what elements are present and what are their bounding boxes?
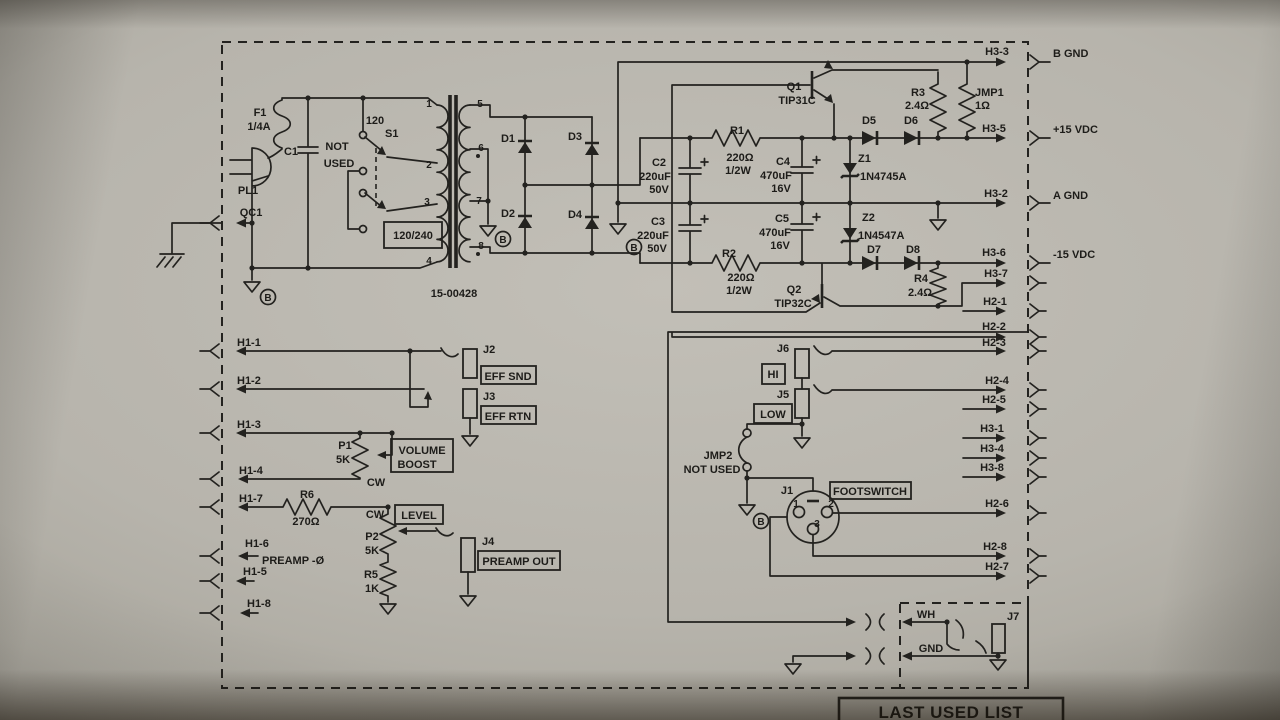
diode-d4: D4 (568, 209, 583, 221)
label-h3-1: H3-1 (980, 423, 1004, 435)
xfmr-pin3: 3 (424, 197, 430, 208)
fuse-f1-value: 1/4A (247, 121, 270, 133)
cap-c2-v: 50V (649, 184, 669, 196)
res-r6-ref: R6 (300, 489, 314, 501)
xfmr-pin4: 4 (426, 256, 432, 267)
label-h3-3: H3-3 (985, 46, 1009, 58)
jack-j4-ref: J4 (482, 536, 495, 548)
xlr-pin2: 2 (828, 499, 834, 510)
output-jack-wires (866, 614, 998, 664)
switch-120: 120 (366, 115, 384, 127)
jack-j3 (463, 389, 477, 418)
preamp-out-label: PREAMP OUT (482, 556, 555, 568)
cap-c2-uf: 220uF (639, 171, 671, 183)
conn-j1-ref: J1 (781, 485, 793, 497)
pot-p1-val: 5K (336, 454, 350, 466)
label-h2-8: H2-8 (983, 541, 1007, 553)
cap-c5-uf: 470uF (759, 227, 791, 239)
switch-s1-ref: S1 (385, 128, 398, 140)
footswitch-label: FOOTSWITCH (833, 486, 907, 498)
transformer-t1 (437, 95, 640, 268)
xfmr-pin6: 6 (478, 143, 484, 154)
cap-c2-ref: C2 (652, 157, 666, 169)
res-r5-val: 1K (365, 583, 379, 595)
qc1-ref: QC1 (240, 207, 263, 219)
label-h2-1: H2-1 (983, 296, 1007, 308)
h1-preamp-wires (245, 348, 470, 613)
jmp1-ohm: 1Ω (975, 100, 990, 112)
res-r4-ref: R4 (914, 273, 929, 285)
label-h1-4: H1-4 (239, 465, 264, 477)
diode-d7: D7 (867, 244, 881, 256)
cap-c4-v: 16V (771, 183, 791, 195)
transformer-part: 15-00428 (431, 288, 478, 300)
xfmr-pin5: 5 (477, 99, 483, 110)
cap-c3-v: 50V (647, 243, 667, 255)
cap-c3-ref: C3 (651, 216, 665, 228)
res-r1-ref: R1 (730, 125, 744, 137)
xlr-pin1: 1 (793, 499, 799, 510)
label-h1-3: H1-3 (237, 419, 261, 431)
res-r1-ohm: 220Ω (726, 152, 753, 164)
xfmr-pin2: 2 (426, 160, 432, 171)
res-r2-ohm: 220Ω (727, 272, 754, 284)
xfmr-pin8: 8 (478, 241, 484, 252)
diode-d5: D5 (862, 115, 876, 127)
cap-c1-ref: C1 (284, 146, 298, 158)
res-r4-ohm: 2.4Ω (908, 287, 932, 299)
zener-z2-part: 1N4547A (858, 230, 905, 242)
cap-c5-v: 16V (770, 240, 790, 252)
label-h1-7: H1-7 (239, 493, 263, 505)
cap-c5-ref: C5 (775, 213, 789, 225)
pot-p1-ref: P1 (338, 440, 351, 452)
diode-d6: D6 (904, 115, 918, 127)
label-h1-8: H1-8 (247, 598, 271, 610)
jack-j2-ref: J2 (483, 344, 495, 356)
ac-input-wires (157, 98, 437, 280)
voltage-selector: 120/240 (393, 230, 433, 242)
xlr-pin3: 3 (814, 519, 820, 530)
label-minus15: -15 VDC (1053, 249, 1095, 261)
res-r3-ref: R3 (911, 87, 925, 99)
res-r2-ref: R2 (722, 248, 736, 260)
label-h1-2: H1-2 (237, 375, 261, 387)
res-r6-ohm: 270Ω (292, 516, 319, 528)
volume-label: VOLUME (398, 445, 445, 457)
level-label: LEVEL (401, 510, 437, 522)
jmp1-ref: JMP1 (975, 87, 1004, 99)
label-plus15: +15 VDC (1053, 124, 1098, 136)
xfmr-pin7: 7 (476, 196, 482, 207)
jack-j6 (795, 349, 809, 378)
junction-dots (249, 59, 1000, 658)
gnd-label: GND (919, 643, 944, 655)
gnd-b-channel: B (757, 517, 764, 528)
eff-snd-label: EFF SND (484, 371, 531, 383)
eff-rtn-label: EFF RTN (485, 411, 531, 423)
label-h3-8: H3-8 (980, 462, 1004, 474)
trans-q2-ref: Q2 (787, 284, 802, 296)
label-preamp-phase: PREAMP -Ø (262, 555, 325, 567)
pot-p2-val: 5K (365, 545, 379, 557)
res-r2-w: 1/2W (726, 285, 752, 297)
label-h3-6: H3-6 (982, 247, 1006, 259)
label-h1-6: H1-6 (245, 538, 269, 550)
c1-not: NOT (325, 141, 349, 153)
fuse-f1-ref: F1 (254, 107, 267, 119)
low-label: LOW (760, 409, 786, 421)
jack-j7-ref: J7 (1007, 611, 1019, 623)
label-b-gnd: B GND (1053, 48, 1089, 60)
jack-j5 (795, 389, 809, 418)
label-h3-7: H3-7 (984, 268, 1008, 280)
arrowheads (236, 58, 1006, 661)
hi-label: HI (768, 369, 779, 381)
pot-p1-cw: CW (367, 477, 386, 489)
pot-p2-cw: CW (366, 509, 385, 521)
label-h2-2: H2-2 (982, 321, 1006, 333)
diode-d2: D2 (501, 208, 515, 220)
zener-z1-ref: Z1 (858, 153, 871, 165)
label-h2-7: H2-7 (985, 561, 1009, 573)
pot-p2-ref: P2 (365, 531, 378, 543)
diode-d3: D3 (568, 131, 582, 143)
cap-c3-uf: 220uF (637, 230, 669, 242)
label-h3-4: H3-4 (980, 443, 1005, 455)
jack-j3-ref: J3 (483, 391, 495, 403)
jack-j4 (461, 538, 475, 572)
gnd-b-xfmr: B (499, 235, 506, 246)
cap-c4-uf: 470uF (760, 170, 792, 182)
label-h1-1: H1-1 (237, 337, 261, 349)
cap-c4-ref: C4 (776, 156, 791, 168)
diode-d8: D8 (906, 244, 920, 256)
jack-j5-ref: J5 (777, 389, 789, 401)
schematic-photo: F1 1/4A C1 NOT USED 120 S1 PL1 QC1 120/2… (0, 0, 1280, 720)
label-h3-5: H3-5 (982, 123, 1006, 135)
jack-j7 (992, 624, 1005, 653)
label-h2-4: H2-4 (985, 375, 1010, 387)
jmp2-note: NOT USED (684, 464, 741, 476)
label-a-gnd: A GND (1053, 190, 1088, 202)
label-h2-5: H2-5 (982, 394, 1006, 406)
schematic-diagram: F1 1/4A C1 NOT USED 120 S1 PL1 QC1 120/2… (0, 0, 1280, 720)
zener-z2-ref: Z2 (862, 212, 875, 224)
wh-label: WH (917, 609, 935, 621)
res-r3-ohm: 2.4Ω (905, 100, 929, 112)
res-r5-ref: R5 (364, 569, 378, 581)
boost-label: BOOST (397, 459, 436, 471)
gnd-b-rect: B (630, 243, 637, 254)
trans-q2-part: TIP32C (774, 298, 811, 310)
diode-d1: D1 (501, 133, 515, 145)
trans-q1-ref: Q1 (787, 81, 802, 93)
jack-j2 (463, 349, 477, 378)
ground-symbols (244, 220, 1006, 674)
label-h3-2: H3-2 (984, 188, 1008, 200)
c1-used: USED (324, 158, 355, 170)
label-h1-5: H1-5 (243, 566, 267, 578)
res-r1-w: 1/2W (725, 165, 751, 177)
label-h2-3: H2-3 (982, 337, 1006, 349)
zener-z1-part: 1N4745A (860, 171, 907, 183)
plug-pl1-ref: PL1 (238, 185, 258, 197)
last-used-list-title: LAST USED LIST (879, 703, 1024, 720)
gnd-b-ac: B (264, 293, 271, 304)
trans-q1-part: TIP31C (778, 95, 815, 107)
jack-j6-ref: J6 (777, 343, 789, 355)
label-h2-6: H2-6 (985, 498, 1009, 510)
jmp2-ref: JMP2 (704, 450, 733, 462)
xfmr-pin1: 1 (426, 99, 432, 110)
